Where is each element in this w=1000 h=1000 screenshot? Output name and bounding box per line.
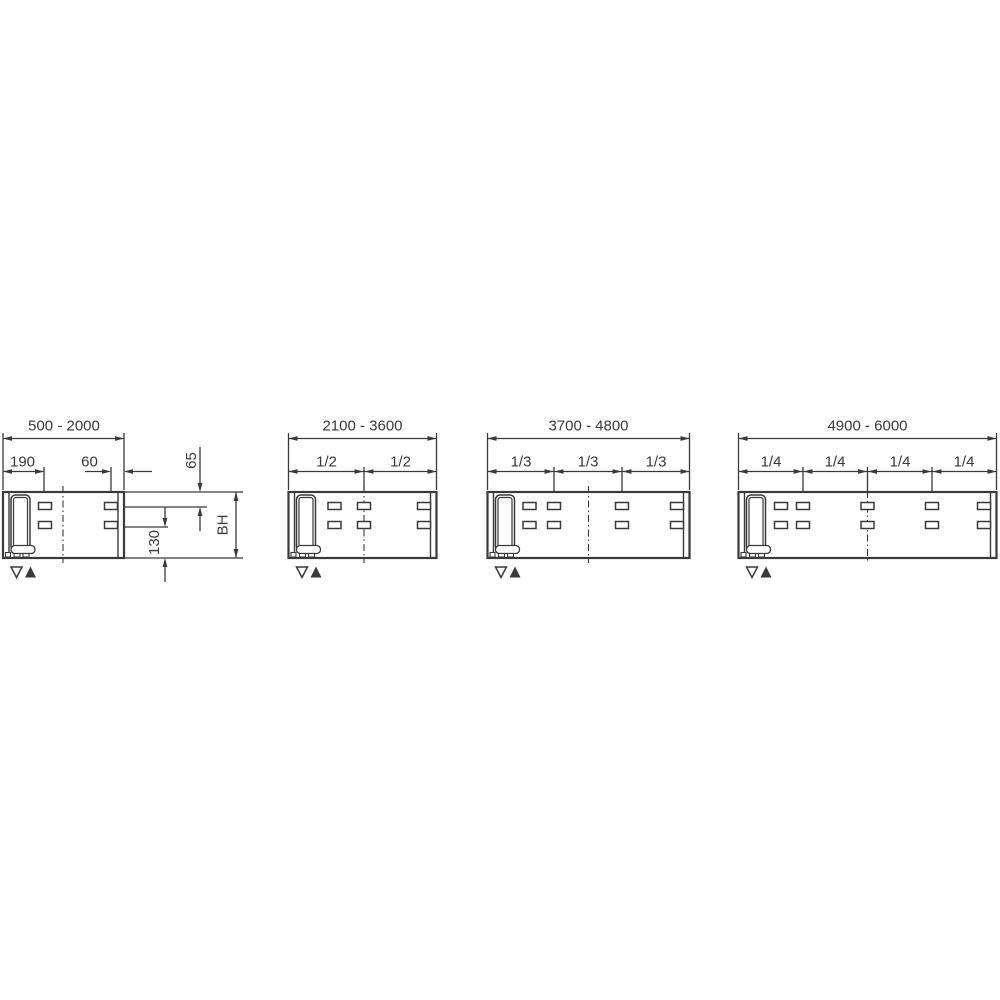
arrow-left-icon (739, 436, 748, 441)
arrow-left-icon (289, 469, 298, 474)
fraction-label: 1/3 (511, 454, 532, 471)
arrow-down-icon (198, 483, 203, 492)
triangle-down-icon (11, 567, 22, 578)
arrow-right-icon (988, 436, 997, 441)
arrow-left-icon (3, 436, 12, 441)
triangle-up-icon (510, 567, 521, 578)
arrow-right-icon (115, 436, 124, 441)
fraction-label: 1/2 (390, 454, 411, 471)
fraction-label: 1/3 (578, 454, 599, 471)
arrow-right-icon (545, 469, 554, 474)
arrow-right-icon (858, 469, 867, 474)
arrow-left-icon (488, 436, 497, 441)
arrow-left-icon (555, 469, 564, 474)
dimension-65: 65 (183, 447, 202, 531)
arrow-left-icon (289, 436, 298, 441)
arrow-up-icon (234, 492, 239, 501)
range-label: 4900 - 6000 (827, 418, 907, 435)
arrow-right-icon (988, 469, 997, 474)
fraction-label: 1/4 (954, 454, 975, 471)
triangle-down-icon (297, 567, 308, 578)
fraction-label: 1/4 (761, 454, 782, 471)
fraction-label: 1/3 (646, 454, 667, 471)
dim-label: 130 (146, 530, 163, 555)
dim-label: 60 (81, 454, 98, 471)
arrow-left-icon (124, 469, 133, 474)
range-label: 500 - 2000 (28, 418, 100, 435)
arrow-left-icon (739, 469, 748, 474)
arrow-right-icon (681, 436, 690, 441)
dimension-halves: 1/2 1/2 (289, 454, 437, 491)
range-label: 2100 - 3600 (322, 418, 402, 435)
arrow-left-icon (365, 469, 374, 474)
arrow-down-icon (234, 549, 239, 558)
technical-drawing-page: 500 - 2000 190 60 65 (0, 0, 1000, 1000)
figure-3700-4800: 3700 - 4800 1/3 1/3 1/3 (488, 418, 690, 578)
fraction-label: 1/2 (316, 454, 337, 471)
arrow-right-icon (428, 469, 437, 474)
panel-body (739, 491, 997, 563)
triangle-up-icon (311, 567, 322, 578)
dimension-130: 130 (146, 508, 167, 583)
arrow-left-icon (933, 469, 942, 474)
arrow-right-icon (102, 469, 111, 474)
arrow-left-icon (804, 469, 813, 474)
triangle-up-icon (761, 567, 772, 578)
arrow-down-icon (163, 518, 168, 527)
arrow-left-icon (868, 469, 877, 474)
panel-body (3, 486, 124, 563)
arrow-right-icon (794, 469, 803, 474)
triangle-up-icon (25, 567, 36, 578)
figure-500-2000: 500 - 2000 190 60 65 (3, 418, 243, 583)
figure-4900-6000: 4900 - 6000 1/4 1/4 1/4 1/4 (739, 418, 997, 578)
dimension-body-height: BH (215, 492, 239, 558)
triangle-down-icon (496, 567, 507, 578)
triangle-down-icon (747, 567, 758, 578)
dim-label: 65 (183, 452, 200, 469)
arrow-up-icon (163, 558, 168, 567)
fraction-label: 1/4 (825, 454, 846, 471)
panel-body (289, 486, 437, 563)
dimension-overall-width: 2100 - 3600 (289, 418, 437, 491)
arrow-left-icon (3, 469, 12, 474)
panel-body (488, 486, 690, 563)
arrow-right-icon (681, 469, 690, 474)
arrow-left-icon (623, 469, 632, 474)
fraction-label: 1/4 (890, 454, 911, 471)
range-label: 3700 - 4800 (548, 418, 628, 435)
dim-label: BH (215, 515, 232, 536)
arrow-right-icon (613, 469, 622, 474)
arrow-left-icon (488, 469, 497, 474)
arrow-right-icon (428, 436, 437, 441)
arrow-right-icon (355, 469, 364, 474)
arrow-right-icon (923, 469, 932, 474)
dim-label: 190 (10, 454, 35, 471)
arrow-right-icon (35, 469, 44, 474)
arrow-up-icon (198, 507, 203, 516)
figure-2100-3600: 2100 - 3600 1/2 1/2 (289, 418, 437, 578)
panel-width-variants-drawing: 500 - 2000 190 60 65 (0, 0, 1000, 1000)
